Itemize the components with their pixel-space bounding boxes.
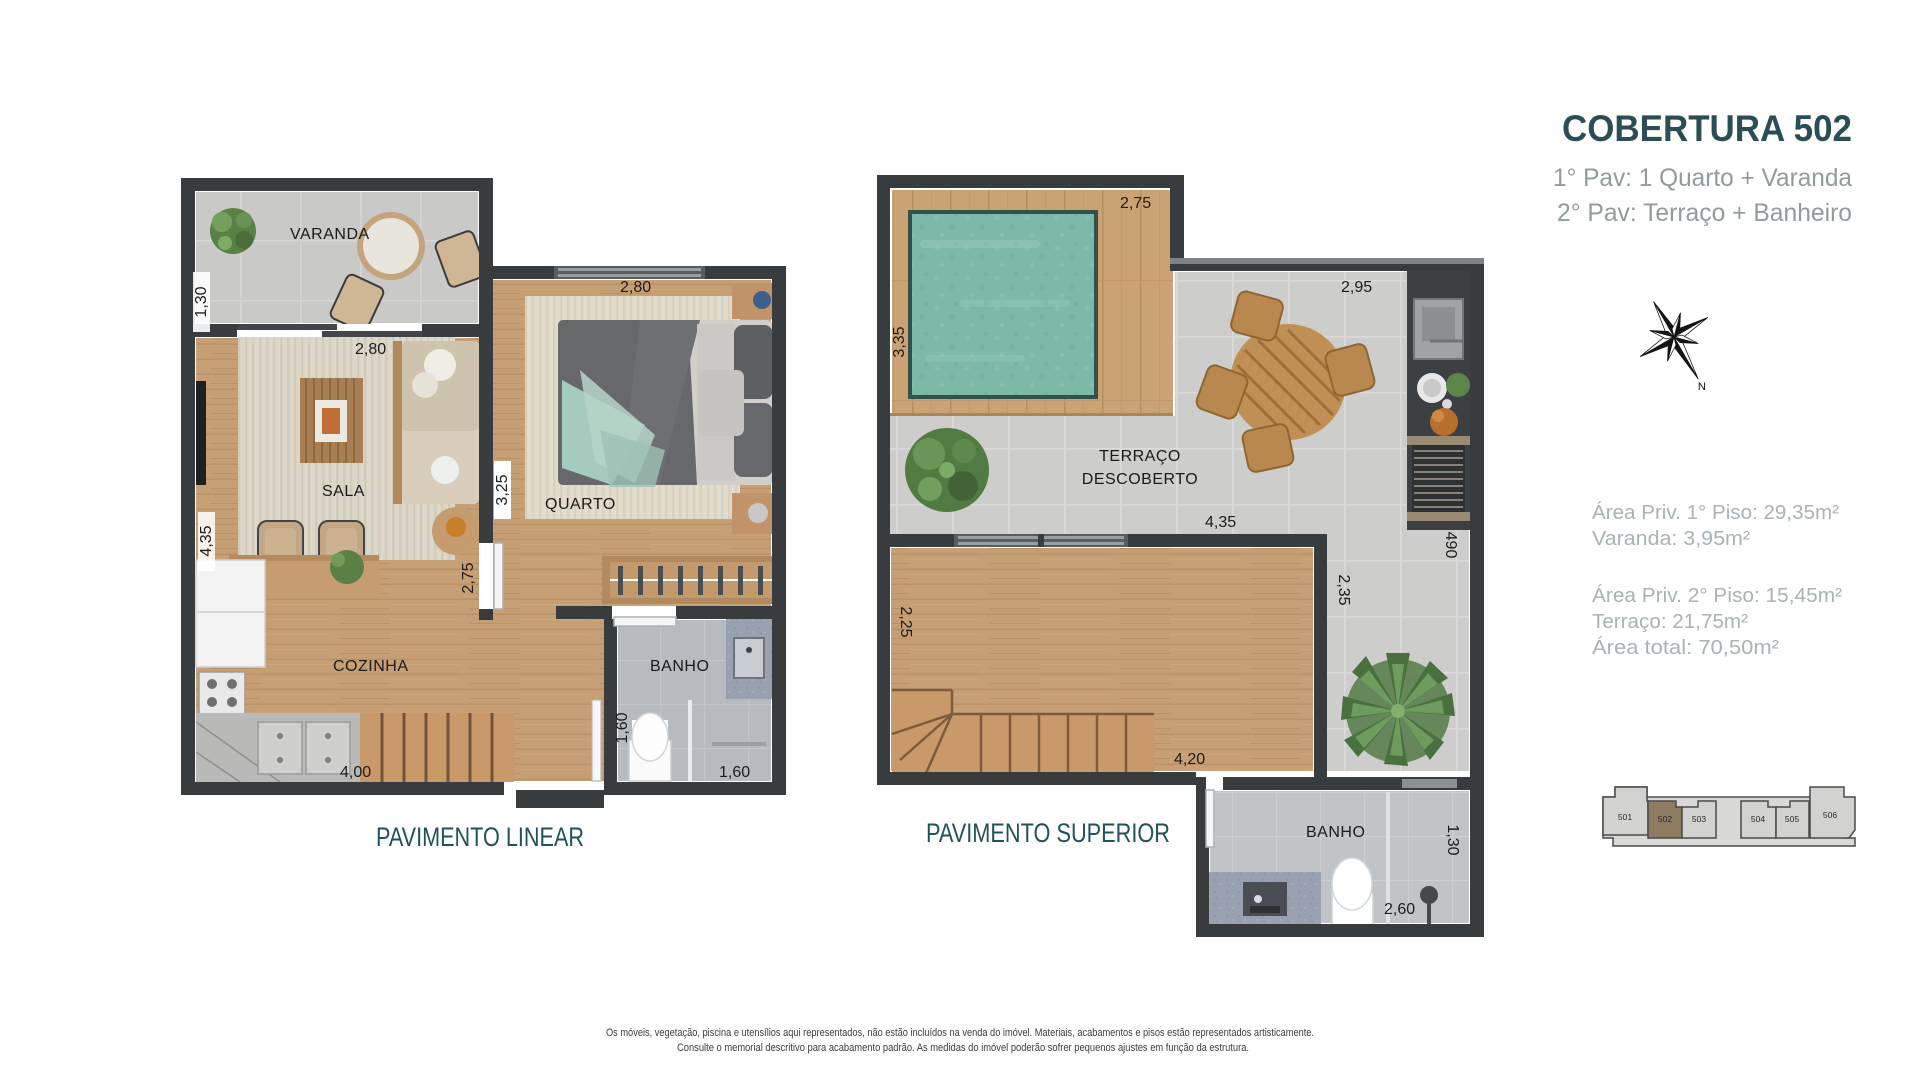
svg-text:Área Priv. 1° Piso: 29,35m²: Área Priv. 1° Piso: 29,35m² — [1592, 501, 1839, 524]
svg-text:PAVIMENTO SUPERIOR: PAVIMENTO SUPERIOR — [926, 818, 1170, 848]
svg-text:N: N — [1698, 381, 1706, 393]
svg-text:2° Pav: Terraço + Banheiro: 2° Pav: Terraço + Banheiro — [1557, 199, 1852, 227]
svg-text:2,75: 2,75 — [460, 562, 477, 593]
svg-text:3,35: 3,35 — [891, 326, 908, 357]
svg-text:2,95: 2,95 — [1341, 279, 1372, 296]
svg-text:490: 490 — [1442, 532, 1459, 559]
svg-text:504: 504 — [1751, 814, 1765, 824]
svg-text:Os móveis, vegetação, piscina: Os móveis, vegetação, piscina e utensíli… — [606, 1027, 1314, 1039]
svg-text:Consulte o memorial descritivo: Consulte o memorial descritivo para acab… — [677, 1042, 1249, 1054]
svg-text:2,60: 2,60 — [1384, 901, 1415, 918]
svg-text:4,35: 4,35 — [198, 525, 215, 556]
svg-text:Terraço: 21,75m²: Terraço: 21,75m² — [1592, 610, 1748, 633]
svg-text:Área total: 70,50m²: Área total: 70,50m² — [1592, 636, 1779, 659]
svg-text:505: 505 — [1785, 814, 1799, 824]
svg-text:3,25: 3,25 — [494, 474, 511, 505]
svg-text:1,60: 1,60 — [719, 764, 750, 781]
svg-text:503: 503 — [1692, 814, 1706, 824]
svg-text:2,75: 2,75 — [1120, 195, 1151, 212]
svg-text:COZINHA: COZINHA — [333, 658, 409, 675]
svg-text:TERRAÇO: TERRAÇO — [1099, 448, 1181, 465]
svg-text:SALA: SALA — [322, 483, 365, 500]
svg-text:2,35: 2,35 — [1335, 574, 1352, 605]
svg-text:PAVIMENTO LINEAR: PAVIMENTO LINEAR — [376, 822, 584, 852]
svg-text:VARANDA: VARANDA — [290, 226, 370, 243]
svg-text:501: 501 — [1618, 812, 1632, 822]
svg-text:4,35: 4,35 — [1205, 514, 1236, 531]
svg-text:4,20: 4,20 — [1174, 751, 1205, 768]
svg-text:Varanda: 3,95m²: Varanda: 3,95m² — [1592, 527, 1750, 550]
svg-text:1° Pav: 1 Quarto + Varanda: 1° Pav: 1 Quarto + Varanda — [1553, 164, 1852, 192]
svg-text:Área Priv. 2° Piso: 15,45m²: Área Priv. 2° Piso: 15,45m² — [1592, 584, 1842, 607]
svg-text:BANHO: BANHO — [650, 658, 709, 675]
svg-text:2,80: 2,80 — [355, 341, 386, 358]
svg-text:506: 506 — [1823, 810, 1837, 820]
svg-text:2,80: 2,80 — [620, 279, 651, 296]
svg-text:502: 502 — [1658, 814, 1672, 824]
svg-text:4,00: 4,00 — [340, 764, 371, 781]
svg-text:DESCOBERTO: DESCOBERTO — [1082, 471, 1198, 488]
svg-text:1,30: 1,30 — [193, 286, 210, 317]
svg-text:COBERTURA 502: COBERTURA 502 — [1562, 108, 1852, 149]
svg-text:2,25: 2,25 — [897, 606, 914, 637]
svg-text:BANHO: BANHO — [1306, 824, 1365, 841]
svg-text:1,60: 1,60 — [614, 712, 631, 743]
svg-text:QUARTO: QUARTO — [545, 496, 616, 513]
svg-text:1,30: 1,30 — [1444, 824, 1461, 855]
